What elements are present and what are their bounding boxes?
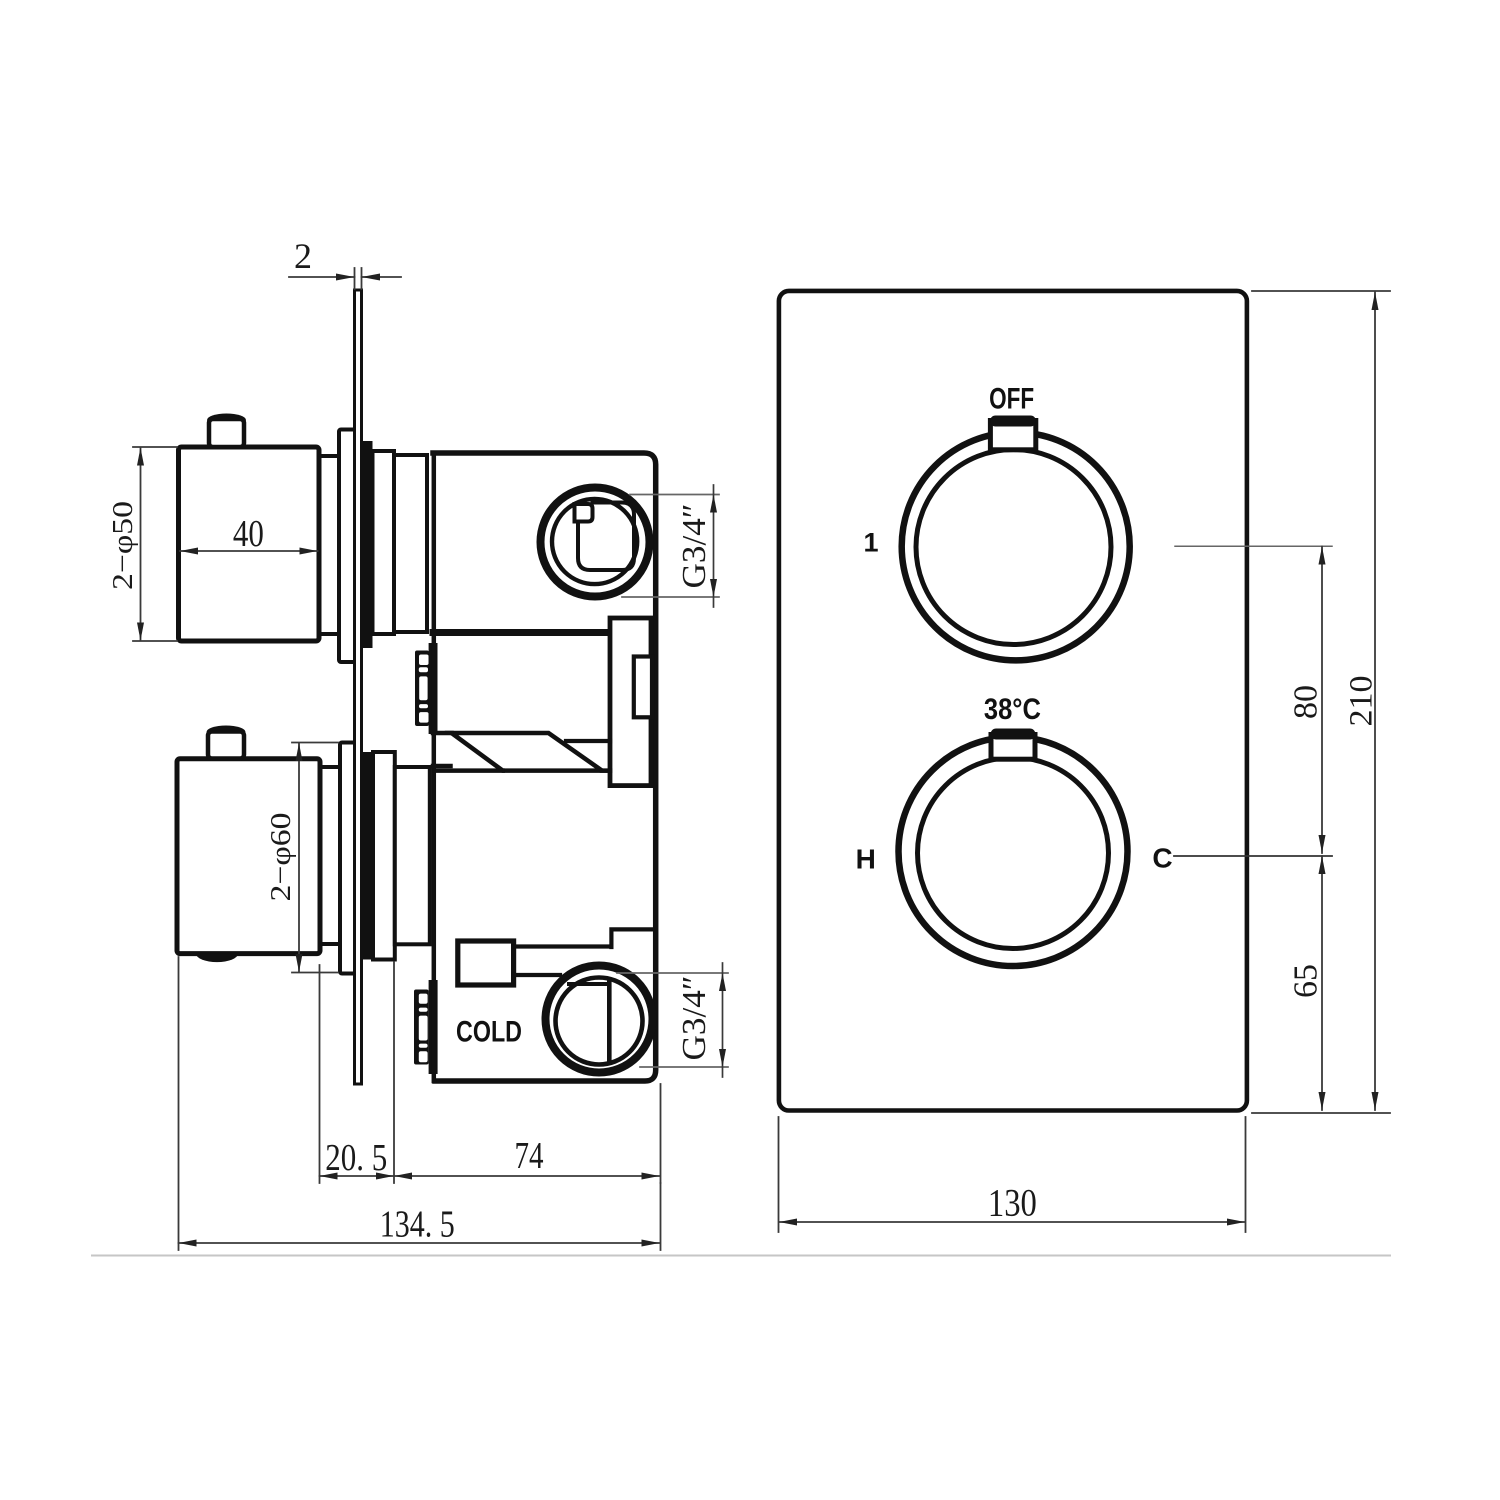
svg-text:65: 65 — [1288, 964, 1325, 998]
svg-text:40: 40 — [233, 513, 264, 555]
svg-text:74: 74 — [515, 1135, 544, 1177]
svg-text:134. 5: 134. 5 — [380, 1204, 455, 1246]
svg-text:C: C — [1152, 843, 1172, 874]
svg-text:H: H — [856, 844, 876, 875]
svg-text:20. 5: 20. 5 — [325, 1137, 387, 1179]
svg-text:OFF: OFF — [989, 382, 1034, 415]
svg-text:2: 2 — [294, 236, 312, 276]
svg-text:2−φ60: 2−φ60 — [265, 813, 297, 902]
svg-text:210: 210 — [1344, 676, 1380, 727]
svg-text:2−φ50: 2−φ50 — [107, 501, 139, 590]
svg-text:80: 80 — [1288, 685, 1325, 719]
svg-text:G3/4″: G3/4″ — [676, 976, 713, 1061]
svg-text:G3/4″: G3/4″ — [676, 504, 713, 589]
svg-text:130: 130 — [988, 1181, 1037, 1224]
svg-text:1: 1 — [863, 528, 878, 558]
svg-text:COLD: COLD — [456, 1016, 522, 1049]
svg-text:38°C: 38°C — [984, 693, 1041, 726]
